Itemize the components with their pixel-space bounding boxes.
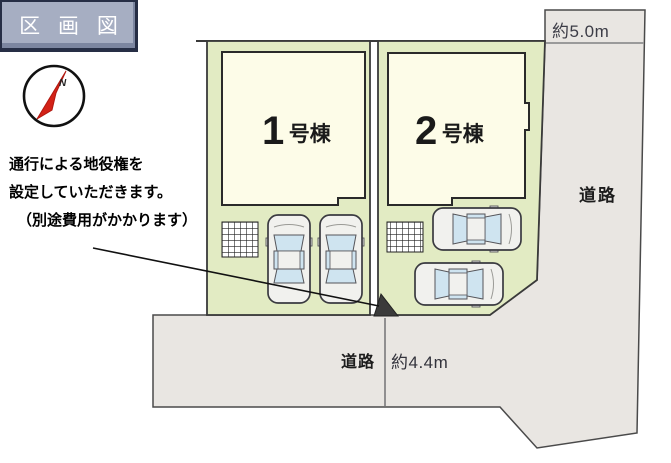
grid-deck-plot2 [387,222,423,252]
easement-annotation-line3: （別途費用がかかります） [9,207,219,235]
building-2-number: 2 [415,109,437,153]
easement-annotation-line1: 通行による地役権を [9,151,219,179]
road-bottom-width-label: 約4.4m [391,353,448,372]
compass-north-label: N [59,78,67,89]
car-plot2-upper [433,206,521,252]
building-2-suffix: 号棟 [442,122,485,146]
easement-annotation: 通行による地役権を 設定していただきます。 （別途費用がかかります） [9,151,219,235]
title-banner-label: 区 画 図 [13,10,124,40]
building-1-suffix: 号棟 [289,122,332,146]
north-compass-icon: N [24,66,84,126]
easement-annotation-line2: 設定していただきます。 [9,179,219,207]
car-plot1-right [318,215,364,303]
road-right-width-label: 約5.0m [552,22,609,41]
car-plot2-lower [415,261,503,307]
road-right-label: 道路 [579,185,617,205]
title-banner: 区 画 図 [0,0,138,52]
plot-plan-page: N 1 号棟 2 号棟 約5.0m 道路 道路 約4.4m 区 画 図 通行によ… [0,0,671,463]
car-plot1-left [266,215,312,303]
road-bottom-label: 道路 [341,352,375,371]
grid-deck-plot1 [222,222,258,257]
building-1-number: 1 [262,109,284,153]
